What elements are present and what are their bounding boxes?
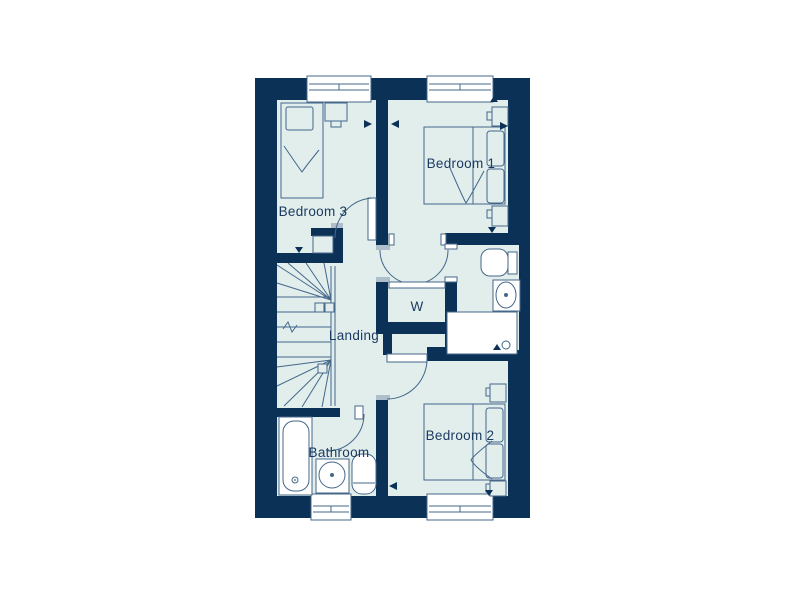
bedside-table-icon xyxy=(492,206,508,226)
wardrobe-doors xyxy=(389,282,445,288)
pillow-icon xyxy=(286,107,313,130)
wall-bed3-stub-top xyxy=(311,228,333,236)
wall-segment-left xyxy=(255,78,277,518)
wall-segment-right-upper xyxy=(508,78,530,245)
window-icon xyxy=(427,494,493,520)
wall-segment-bottom1 xyxy=(255,496,313,518)
wall-bathroom-bed2-divider xyxy=(376,400,388,496)
wall-bathroom-top xyxy=(277,408,340,417)
door-leaf-bathroom xyxy=(355,406,363,419)
table-knob xyxy=(331,121,341,127)
door-leaf-bedroom2 xyxy=(387,354,427,362)
wall-segment-bottom2 xyxy=(349,496,428,518)
room-label-bedroom2: Bedroom 2 xyxy=(426,428,495,443)
table-knob xyxy=(487,210,492,218)
wall-cap xyxy=(376,277,390,282)
newel-post xyxy=(318,364,327,373)
window-icon xyxy=(427,76,493,102)
wall-bed3-stub xyxy=(333,228,343,263)
bedside-table-icon xyxy=(313,236,333,253)
door-frame xyxy=(445,244,457,249)
wall-segment-right-lower xyxy=(508,358,530,518)
door-frame xyxy=(445,277,457,282)
wall-segment-top2 xyxy=(370,78,428,100)
bath-drain-dot xyxy=(294,479,296,481)
wall-bed2-stub-upper xyxy=(383,334,392,355)
door-leaf-bedroom3 xyxy=(368,198,376,240)
table-knob xyxy=(486,388,490,396)
pillow-icon xyxy=(486,444,503,478)
floor-plan: Bedroom 3 Bedroom 1 Bedroom 2 Landing Ba… xyxy=(0,0,800,600)
table-knob xyxy=(487,112,492,120)
bedside-table-icon xyxy=(490,384,506,402)
shower-icon xyxy=(447,312,517,354)
wall-segment-right-ensuite xyxy=(519,245,530,358)
wall-bed3-bed1-divider xyxy=(376,100,388,245)
window-icon xyxy=(307,76,371,102)
toilet-cistern xyxy=(508,252,517,274)
sink-tap xyxy=(330,473,334,477)
room-label-bedroom1: Bedroom 1 xyxy=(427,156,496,171)
wall-wardrobe-bottom xyxy=(376,322,457,334)
door-frame xyxy=(389,234,394,245)
bedside-table-icon xyxy=(325,103,347,121)
wall-ensuite-top xyxy=(445,233,508,245)
room-label-bathroom: Bathroom xyxy=(309,445,370,460)
window-icon xyxy=(311,494,351,520)
wall-cap xyxy=(376,245,390,250)
door-frame xyxy=(441,234,446,245)
pillow-icon xyxy=(487,169,504,203)
toilet-icon xyxy=(481,249,508,276)
room-label-wardrobe: W xyxy=(410,299,423,314)
bedside-table-icon xyxy=(490,481,506,496)
room-label-bedroom3: Bedroom 3 xyxy=(279,204,348,219)
newel-post xyxy=(325,303,334,312)
room-label-landing: Landing xyxy=(329,328,379,343)
sink-tap xyxy=(504,293,508,297)
toilet-icon xyxy=(352,454,376,494)
newel-post xyxy=(315,303,324,312)
wall-segment-top1 xyxy=(255,78,308,100)
wall-segment-bottom3 xyxy=(492,496,530,518)
